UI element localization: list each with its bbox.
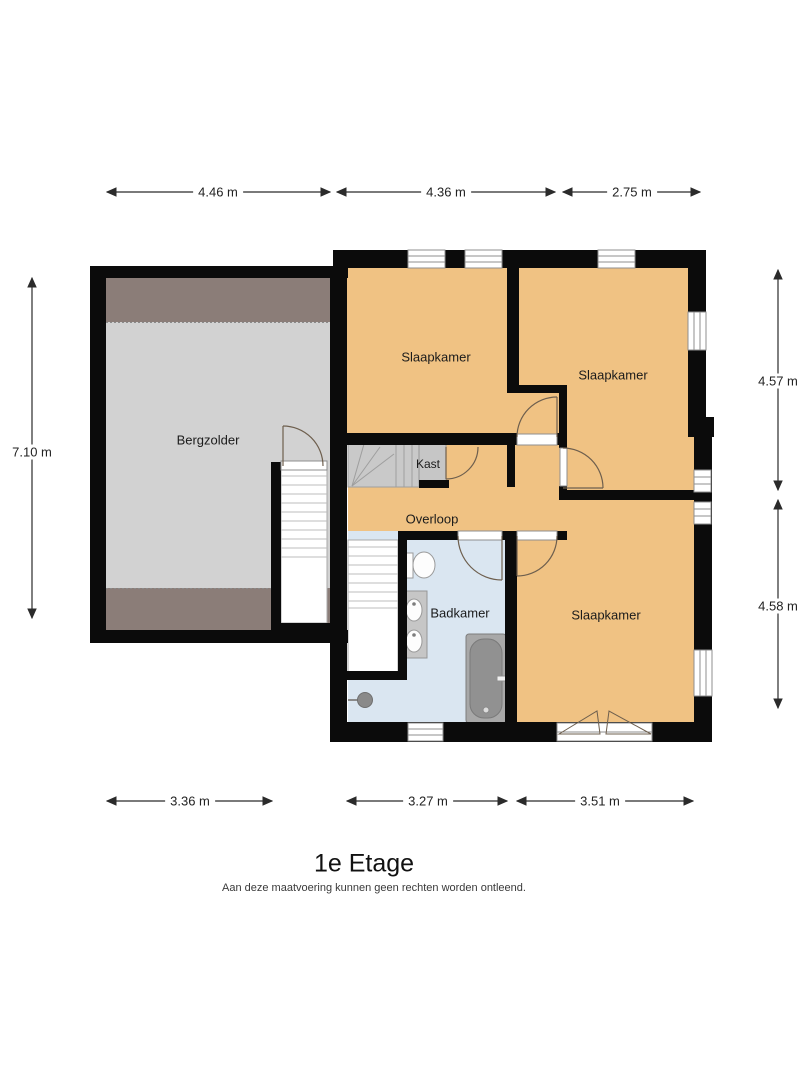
- wall-kast-stub: [507, 445, 515, 487]
- wall-fitting-knob: [358, 693, 373, 708]
- window-top-1: [408, 250, 445, 268]
- room-label-slaapkamer-2: Slaapkamer: [578, 368, 647, 383]
- window-top-2: [465, 250, 502, 268]
- room-label-bergzolder: Bergzolder: [177, 433, 240, 448]
- wall-slaapkamer1-2-divider: [507, 268, 519, 393]
- wall-top: [333, 250, 706, 268]
- window-right-mid-1: [694, 470, 711, 492]
- floorplan-page: Bergzolder Slaapkamer Slaapkamer Slaapka…: [0, 0, 810, 1080]
- wall-stairwell-bottom: [345, 671, 407, 680]
- toilet-bowl: [413, 552, 435, 578]
- dim-label-left: 7.10 m: [7, 445, 57, 460]
- wall-bergzolder-top: [90, 266, 348, 278]
- disclaimer-text: Aan deze maatvoering kunnen geen rechten…: [222, 882, 526, 894]
- bergzolder-stairwell: [281, 470, 327, 623]
- window-bottom-badkamer: [408, 723, 443, 741]
- floorplan-drawing: [0, 0, 810, 1080]
- dim-label-right-2: 4.58 m: [753, 599, 803, 614]
- dim-label-bottom-2: 3.27 m: [403, 794, 453, 809]
- dim-label-top-1: 4.46 m: [193, 185, 243, 200]
- window-right-mid-2: [694, 502, 711, 524]
- wall-stairwell-right: [398, 531, 407, 680]
- dim-label-top-3: 2.75 m: [607, 185, 657, 200]
- wall-stair-enclosure-bottom: [271, 623, 330, 636]
- wall-badkamer-top: [407, 531, 458, 540]
- wall-bergzolder-left: [90, 266, 106, 643]
- wall-divider-vertical: [330, 268, 347, 742]
- wall-overloop-bottom-stub: [502, 531, 517, 540]
- slaapkamer2-floor-lower: [567, 385, 694, 500]
- wall-slaapkamer1-bottom: [347, 433, 517, 445]
- sink-1-faucet: [412, 602, 416, 606]
- wall-slaapkamer2-3-divider: [559, 490, 702, 500]
- wall-jog-horizontal: [507, 385, 567, 393]
- room-label-kast: Kast: [416, 457, 440, 471]
- room-label-overloop: Overloop: [406, 512, 459, 527]
- wall-bottom: [333, 722, 712, 742]
- bergzolder-sloped-band-top: [106, 278, 330, 322]
- wall-kast-bottom: [419, 480, 449, 488]
- window-right-lower: [694, 650, 712, 696]
- window-right-upper: [688, 312, 706, 350]
- wall-stair-enclosure-left: [271, 462, 281, 636]
- wall-overloop-bottom-right: [557, 531, 567, 540]
- room-label-slaapkamer-3: Slaapkamer: [571, 608, 640, 623]
- wall-stub-right-of-door: [557, 433, 567, 445]
- window-top-3: [598, 250, 635, 268]
- dim-label-right-1: 4.57 m: [753, 374, 803, 389]
- sink-2-faucet: [412, 633, 416, 637]
- dim-label-bottom-3: 3.51 m: [575, 794, 625, 809]
- page-title: 1e Etage: [314, 850, 414, 879]
- bathtub-drain: [483, 707, 489, 713]
- dim-label-top-2: 4.36 m: [421, 185, 471, 200]
- dim-label-bottom-1: 3.36 m: [165, 794, 215, 809]
- wall-badkamer-slaapkamer3-divider: [505, 540, 517, 722]
- center-stairwell: [348, 540, 398, 672]
- room-label-slaapkamer-1: Slaapkamer: [401, 350, 470, 365]
- room-label-badkamer: Badkamer: [430, 606, 489, 621]
